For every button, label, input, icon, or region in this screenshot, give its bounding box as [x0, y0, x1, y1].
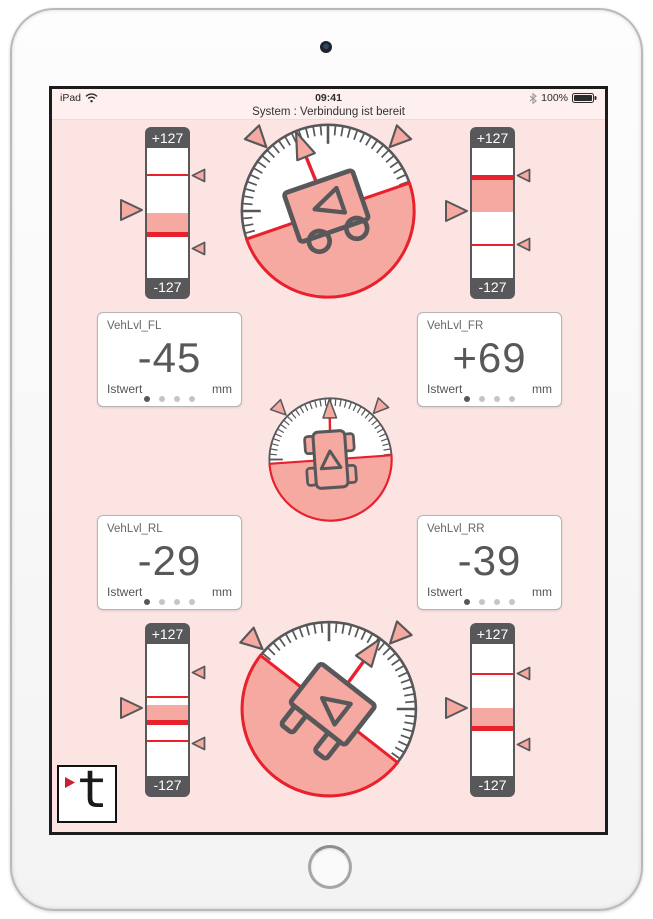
dot [479, 599, 485, 605]
limit-line [472, 244, 513, 246]
dot [494, 396, 500, 402]
scale-max-label: +127 [472, 625, 513, 644]
tilt-gauge-center [251, 380, 410, 539]
value-tile-fr[interactable]: VehLvl_FR +69 Istwert mm [417, 312, 562, 407]
value-unit: mm [212, 585, 232, 599]
tilt-gauge-rear [216, 596, 442, 822]
page-indicator[interactable] [98, 396, 241, 402]
dot [189, 599, 195, 605]
limit-marker [190, 167, 207, 184]
limit-marker [515, 665, 532, 682]
scale-max-label: +127 [147, 625, 188, 644]
level-value: +69 [418, 334, 561, 382]
limit-marker [515, 236, 532, 253]
scale-min-label: -127 [147, 776, 188, 795]
page-indicator[interactable] [418, 599, 561, 605]
value-caption: Istwert [107, 585, 142, 599]
level-fill [472, 708, 513, 726]
value-unit: mm [532, 382, 552, 396]
limit-marker [190, 664, 207, 681]
value-caption: Istwert [427, 585, 462, 599]
value-caption: Istwert [107, 382, 142, 396]
value-line [472, 175, 513, 180]
limit-line [147, 740, 188, 742]
page: 09:41 iPad 100% [0, 0, 653, 919]
value-unit: mm [212, 382, 232, 396]
app-logo: t [57, 765, 117, 823]
slider-track [472, 644, 513, 776]
gauge-dial [251, 380, 410, 539]
limit-marker [190, 735, 207, 752]
slider-track [472, 148, 513, 278]
current-value-marker [443, 695, 469, 721]
current-value-marker [118, 695, 144, 721]
dot [174, 599, 180, 605]
value-tile-rl[interactable]: VehLvl_RL -29 Istwert mm [97, 515, 242, 610]
page-indicator[interactable] [418, 396, 561, 402]
logo-letter: t [77, 760, 108, 820]
gauge-dial [216, 99, 440, 323]
level-slider-rr: +127-127 [470, 623, 515, 797]
signal-name: VehLvl_RR [427, 523, 485, 535]
value-caption: Istwert [427, 382, 462, 396]
dot-active [464, 599, 470, 605]
tilt-gauge-front [216, 99, 440, 323]
level-fill [472, 178, 513, 212]
dot-active [464, 396, 470, 402]
limit-line [472, 673, 513, 675]
limit-marker [515, 736, 532, 753]
dot [159, 396, 165, 402]
limit-marker [515, 167, 532, 184]
scale-min-label: -127 [472, 278, 513, 297]
dot [479, 396, 485, 402]
value-tile-fl[interactable]: VehLvl_FL -45 Istwert mm [97, 312, 242, 407]
app-screen: 09:41 iPad 100% [49, 86, 608, 835]
dot [509, 396, 515, 402]
level-slider-rl: +127-127 [145, 623, 190, 797]
current-value-marker [118, 197, 144, 223]
scale-max-label: +127 [472, 129, 513, 148]
scale-max-label: +127 [147, 129, 188, 148]
scale-min-label: -127 [147, 278, 188, 297]
value-line [147, 232, 188, 237]
limit-line [147, 696, 188, 698]
gauge-dial [216, 596, 442, 822]
level-slider-fl: +127-127 [145, 127, 190, 299]
signal-name: VehLvl_RL [107, 523, 163, 535]
logo-flag-icon [65, 777, 75, 788]
home-button[interactable] [308, 845, 352, 889]
scale-min-label: -127 [472, 776, 513, 795]
camera-icon [320, 41, 332, 53]
slider-track [147, 644, 188, 776]
dot [174, 396, 180, 402]
dot-active [144, 599, 150, 605]
value-tile-rr[interactable]: VehLvl_RR -39 Istwert mm [417, 515, 562, 610]
ipad-frame: 09:41 iPad 100% [10, 8, 643, 911]
value-unit: mm [532, 585, 552, 599]
limit-line [147, 174, 188, 176]
level-value: -45 [98, 334, 241, 382]
value-line [472, 726, 513, 731]
dot-active [144, 396, 150, 402]
level-slider-fr: +127-127 [470, 127, 515, 299]
page-indicator[interactable] [98, 599, 241, 605]
level-fill [147, 705, 188, 720]
current-value-marker [443, 198, 469, 224]
level-value: -29 [98, 537, 241, 585]
level-value: -39 [418, 537, 561, 585]
dot [159, 599, 165, 605]
slider-track [147, 148, 188, 278]
dot [494, 599, 500, 605]
signal-name: VehLvl_FL [107, 320, 161, 332]
signal-name: VehLvl_FR [427, 320, 483, 332]
value-line [147, 720, 188, 725]
dot [509, 599, 515, 605]
dot [189, 396, 195, 402]
limit-marker [190, 240, 207, 257]
